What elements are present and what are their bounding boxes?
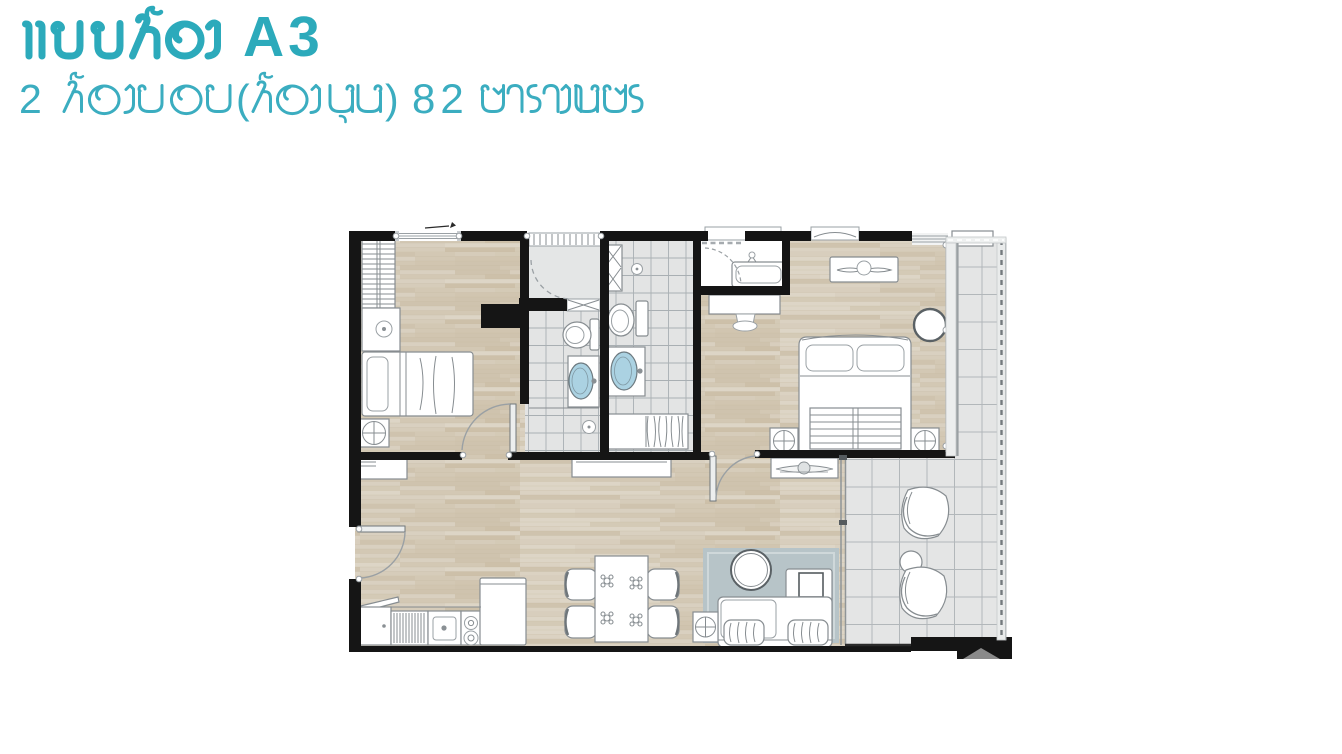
svg-text:2: 2 [19, 76, 42, 122]
svg-text:): ) [385, 76, 399, 122]
svg-text:(: ( [236, 76, 250, 122]
svg-text:82: 82 [412, 75, 469, 122]
svg-text:A3: A3 [243, 5, 324, 69]
